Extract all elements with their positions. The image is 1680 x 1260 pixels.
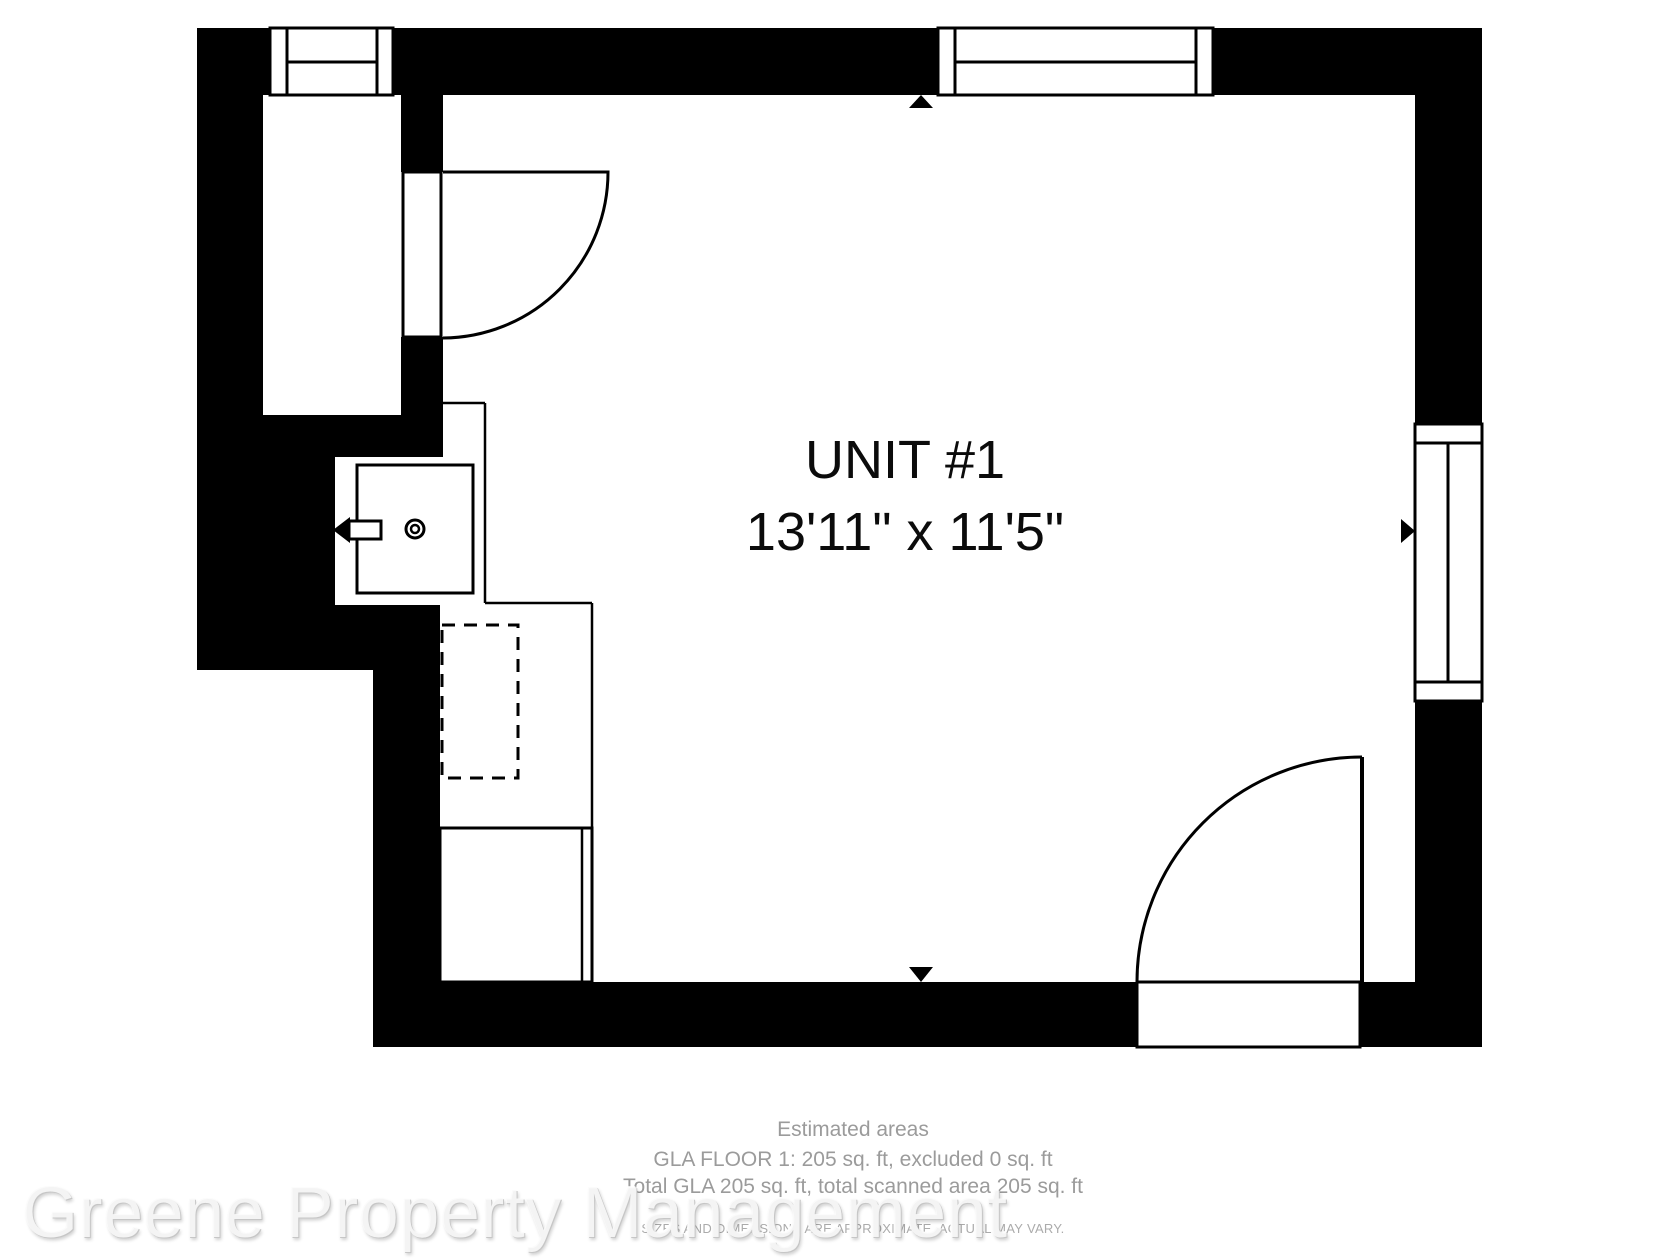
door-closet	[403, 172, 608, 338]
window-top-right	[938, 28, 1213, 95]
window-right	[1415, 424, 1482, 701]
door-closet-swing-arc	[443, 172, 608, 338]
door-closet-leaf	[403, 172, 441, 337]
unit-label: UNIT #1	[805, 433, 1005, 487]
window-top-left	[270, 28, 393, 95]
floor-plan-page: UNIT #1 13'11" x 11'5" Estimated areas G…	[0, 0, 1680, 1260]
scan-marker-top-icon	[909, 95, 933, 108]
cabinet-box	[440, 828, 592, 982]
appliance-dashed-outline	[442, 625, 518, 778]
windows	[270, 28, 1482, 701]
door-entry-threshold	[1137, 982, 1360, 1047]
scan-marker-bottom-icon	[909, 967, 933, 982]
wall-left-upper	[197, 95, 263, 415]
wall-door-column-upper	[401, 95, 443, 172]
floor-plan-svg	[0, 0, 1680, 1260]
scan-marker-right-icon	[1401, 519, 1415, 543]
sink	[333, 465, 473, 593]
estimated-areas-title: Estimated areas	[777, 1119, 929, 1141]
watermark: Greene Property Management	[22, 1177, 1008, 1249]
gla-floor-line: GLA FLOOR 1: 205 sq. ft, excluded 0 sq. …	[653, 1149, 1052, 1171]
wall-door-column-lower	[401, 337, 443, 457]
wall-left-mid	[197, 457, 335, 605]
unit-dimensions: 13'11" x 11'5"	[746, 505, 1064, 559]
door-entry-swing-arc	[1137, 757, 1362, 982]
sink-faucet-arrow-icon	[333, 517, 350, 543]
sink-faucet-stem	[349, 521, 381, 539]
door-entry	[1137, 757, 1362, 1047]
wall-left-step	[197, 605, 440, 670]
wall-left-lower-column	[373, 670, 440, 982]
cabinet	[440, 828, 592, 982]
